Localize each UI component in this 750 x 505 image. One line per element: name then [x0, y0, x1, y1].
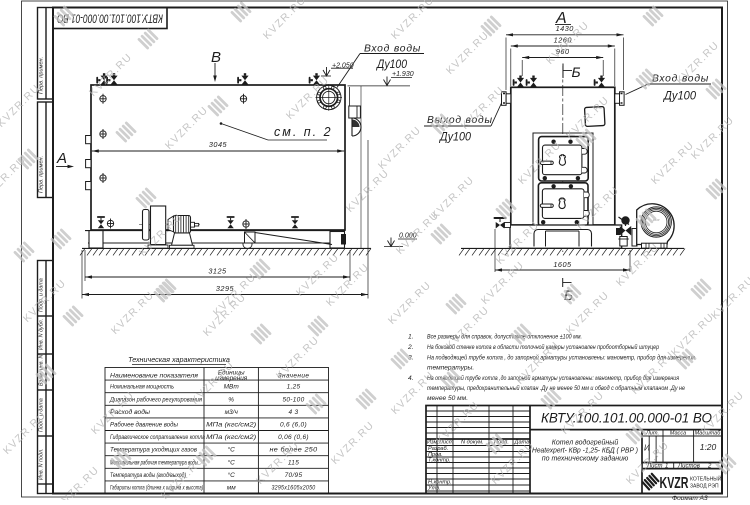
- svg-text:KVZR: KVZR: [660, 475, 689, 492]
- svg-text:3295х1605х2050: 3295х1605х2050: [272, 485, 316, 492]
- svg-text:В: В: [211, 49, 221, 66]
- svg-text:2: 2: [707, 463, 712, 469]
- svg-text:Наименование показателя: Наименование показателя: [110, 373, 199, 380]
- svg-text:МПа (кгс/см2): МПа (кгс/см2): [206, 434, 256, 441]
- svg-text:Техническая характеристика: Техническая характеристика: [128, 355, 230, 364]
- svg-text:Б: Б: [572, 64, 581, 80]
- svg-text:1: 1: [665, 463, 668, 469]
- svg-text:А: А: [56, 150, 67, 167]
- svg-text:3045: 3045: [209, 140, 228, 149]
- svg-text:Рабочее давление воды: Рабочее давление воды: [110, 421, 178, 429]
- svg-text:Лит.: Лит.: [645, 431, 659, 437]
- svg-text:м3/ч: м3/ч: [225, 409, 239, 416]
- svg-text:мм: мм: [227, 485, 236, 492]
- svg-text:КВТУ.100.101.00.000-01 ВО: КВТУ.100.101.00.000-01 ВО: [57, 12, 163, 24]
- svg-text:Утв.: Утв.: [427, 486, 441, 492]
- svg-text:0,6 (6,0): 0,6 (6,0): [280, 422, 307, 429]
- svg-text:по техническому заданию: по техническому заданию: [542, 455, 629, 463]
- svg-text:1,25: 1,25: [287, 384, 301, 391]
- svg-text:Вход воды: Вход воды: [364, 44, 421, 55]
- svg-text:%: %: [228, 396, 234, 403]
- svg-text:1605: 1605: [553, 260, 572, 269]
- svg-text:Инв. N подл.: Инв. N подл.: [39, 448, 45, 480]
- svg-text:N докум.: N докум.: [461, 440, 484, 446]
- svg-text:4.: 4.: [408, 375, 414, 382]
- svg-text:Ду100: Ду100: [662, 89, 696, 103]
- svg-text:Перв. примен.: Перв. примен.: [39, 156, 45, 193]
- svg-text:Гидравлическое сопративление к: Гидравлическое сопративление котла: [110, 433, 205, 441]
- svg-text:Котел водогрейный: Котел водогрейный: [552, 439, 619, 447]
- svg-text:КОТЕЛЬНЫЙ: КОТЕЛЬНЫЙ: [690, 475, 722, 483]
- svg-text:°С: °С: [228, 458, 236, 466]
- svg-text:°С: °С: [228, 471, 236, 479]
- svg-text:см. п. 2: см. п. 2: [274, 125, 333, 139]
- svg-text:2.: 2.: [407, 344, 414, 351]
- svg-text:Формат А3: Формат А3: [672, 495, 708, 500]
- svg-text:3125: 3125: [208, 267, 227, 276]
- svg-text:менее 50 мм.: менее 50 мм.: [427, 395, 468, 402]
- svg-text:Т.контр.: Т.контр.: [428, 457, 451, 463]
- svg-text:°С: °С: [228, 446, 236, 454]
- svg-text:МПа (кгс/см2): МПа (кгс/см2): [206, 422, 256, 429]
- svg-text:Heatexpert- КВр -1,25- КБД ( Р: Heatexpert- КВр -1,25- КБД ( РВР ): [532, 448, 638, 455]
- svg-text:Масса: Масса: [670, 431, 687, 437]
- svg-text:+1.930: +1.930: [392, 71, 414, 78]
- svg-text:Номинальная мощность: Номинальная мощность: [110, 384, 174, 391]
- svg-text:Листов: Листов: [677, 463, 700, 469]
- svg-text:1:20: 1:20: [700, 442, 717, 452]
- svg-text:На подводящей трубе котла ,: На подводящей трубе котла , до запорной …: [427, 354, 695, 362]
- svg-text:50-100: 50-100: [282, 396, 304, 403]
- svg-text:4 3: 4 3: [289, 409, 299, 416]
- svg-text:Инв. N дубл.: Инв. N дубл.: [39, 319, 45, 350]
- svg-text:Ду100: Ду100: [375, 57, 407, 71]
- svg-text:115: 115: [288, 459, 299, 466]
- svg-text:И: И: [644, 444, 650, 453]
- svg-text:70/95: 70/95: [285, 472, 303, 479]
- svg-text:Габариты котла (длинна х ширин: Габариты котла (длинна х ширина х высота…: [110, 484, 203, 492]
- svg-text:1.: 1.: [408, 334, 414, 341]
- svg-text:ЗАВОД РЭП: ЗАВОД РЭП: [690, 484, 719, 490]
- svg-text:МВт: МВт: [224, 384, 240, 391]
